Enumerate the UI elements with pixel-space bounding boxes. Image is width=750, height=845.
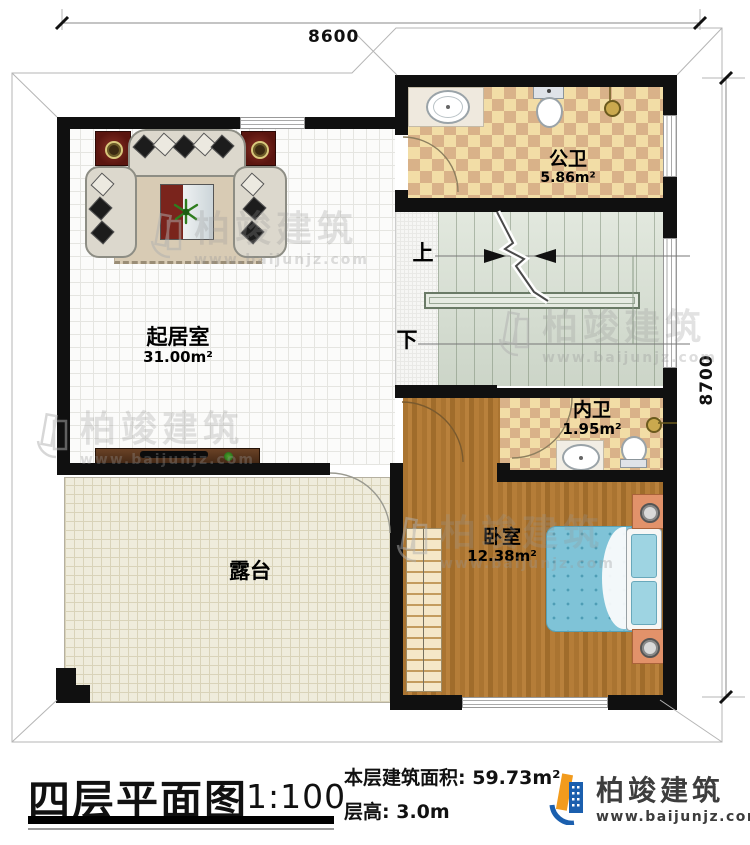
wall — [395, 385, 497, 398]
window — [240, 117, 305, 129]
shower-icon — [646, 417, 662, 433]
wall — [663, 177, 677, 238]
living-room-area: 31.00m² — [128, 350, 228, 365]
wall — [663, 75, 677, 115]
nightstand — [632, 629, 666, 664]
sink-icon — [426, 90, 470, 124]
bedroom-area: 12.38m² — [462, 549, 542, 564]
title-underline — [28, 816, 334, 824]
coffee-table — [160, 184, 214, 240]
public-bath-label: 公卫 — [528, 150, 608, 170]
toilet-icon — [620, 459, 647, 468]
title-underline-thin — [28, 828, 334, 830]
stair-handrail — [424, 292, 640, 309]
floor-area-line: 本层建筑面积: 59.73m² — [344, 763, 560, 790]
end-table — [241, 131, 276, 166]
brand-logo-icon — [542, 769, 588, 825]
wall — [390, 695, 462, 710]
wall — [305, 117, 403, 129]
nightstand-ornament-icon — [640, 503, 660, 523]
brand-url: www.baijunjz.com — [596, 809, 750, 825]
stairs-up-label: 上 — [410, 242, 436, 264]
dimension-top-value: 8600 — [308, 27, 359, 47]
wall — [57, 463, 330, 475]
wall — [395, 198, 677, 212]
terrace-label: 露台 — [214, 560, 286, 582]
wall — [608, 695, 677, 710]
floor-area-label: 本层建筑面积: — [344, 767, 466, 789]
wardrobe — [406, 528, 442, 692]
floor-plan-canvas: 起居室 31.00m² 公卫 5.86m² 内卫 1.95m² 卧室 12.38… — [0, 0, 750, 845]
window — [663, 238, 677, 368]
living-room-label: 起居室 — [128, 326, 228, 348]
wall — [497, 470, 677, 482]
floor-height-label: 层高: — [344, 801, 390, 823]
terrace-floor — [64, 477, 395, 703]
nightstand-ornament-icon — [640, 638, 660, 658]
plant-icon — [171, 197, 201, 227]
wall — [663, 368, 677, 710]
wall — [497, 388, 677, 398]
title-block: 四层平面图 1:100 本层建筑面积: 59.73m² 层高: 3.0m 柏竣建… — [0, 755, 750, 845]
wall — [395, 75, 677, 87]
bed-pillow — [631, 581, 657, 625]
table-ornament-icon — [251, 141, 269, 159]
window — [462, 697, 608, 708]
plant-icon — [224, 452, 233, 461]
plan-scale: 1:100 — [246, 777, 346, 816]
nightstand — [632, 494, 666, 529]
tv-icon — [140, 451, 208, 458]
window — [663, 115, 677, 177]
table-ornament-icon — [105, 141, 123, 159]
wall — [390, 463, 403, 710]
wall — [57, 117, 70, 473]
dimension-line-top — [56, 9, 706, 30]
end-table — [95, 131, 131, 166]
terrace-pillar — [56, 685, 90, 703]
inner-bath-area: 1.95m² — [556, 422, 628, 437]
shower-icon — [604, 100, 621, 117]
inner-bath-label: 内卫 — [556, 401, 628, 421]
stairs-down-label: 下 — [394, 329, 420, 351]
brand-logo: 柏竣建筑 www.baijunjz.com — [542, 769, 750, 825]
bedroom-label: 卧室 — [462, 528, 542, 548]
sink-icon — [562, 444, 600, 471]
floor-height-value: 3.0m — [396, 801, 449, 823]
brand-name: 柏竣建筑 — [596, 769, 750, 809]
dimension-right-value: 8700 — [697, 349, 717, 411]
wall — [57, 117, 240, 129]
bed-pillow — [631, 534, 657, 578]
floor-height-line: 层高: 3.0m — [344, 797, 450, 824]
public-bath-area: 5.86m² — [528, 171, 608, 185]
